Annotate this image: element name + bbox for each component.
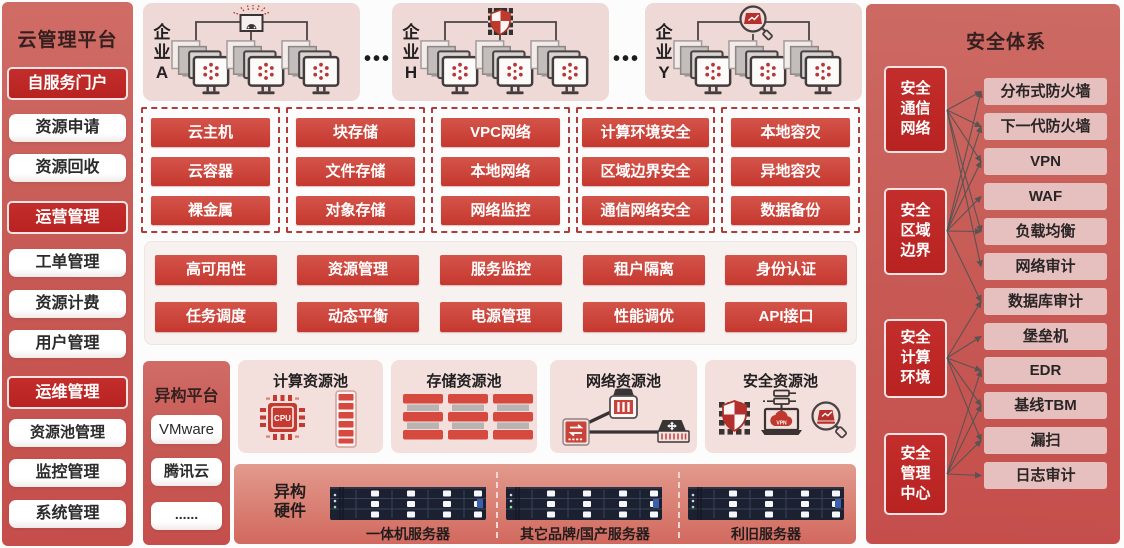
svg-text:CPU: CPU	[274, 414, 291, 423]
svg-text:VPN: VPN	[776, 421, 787, 427]
